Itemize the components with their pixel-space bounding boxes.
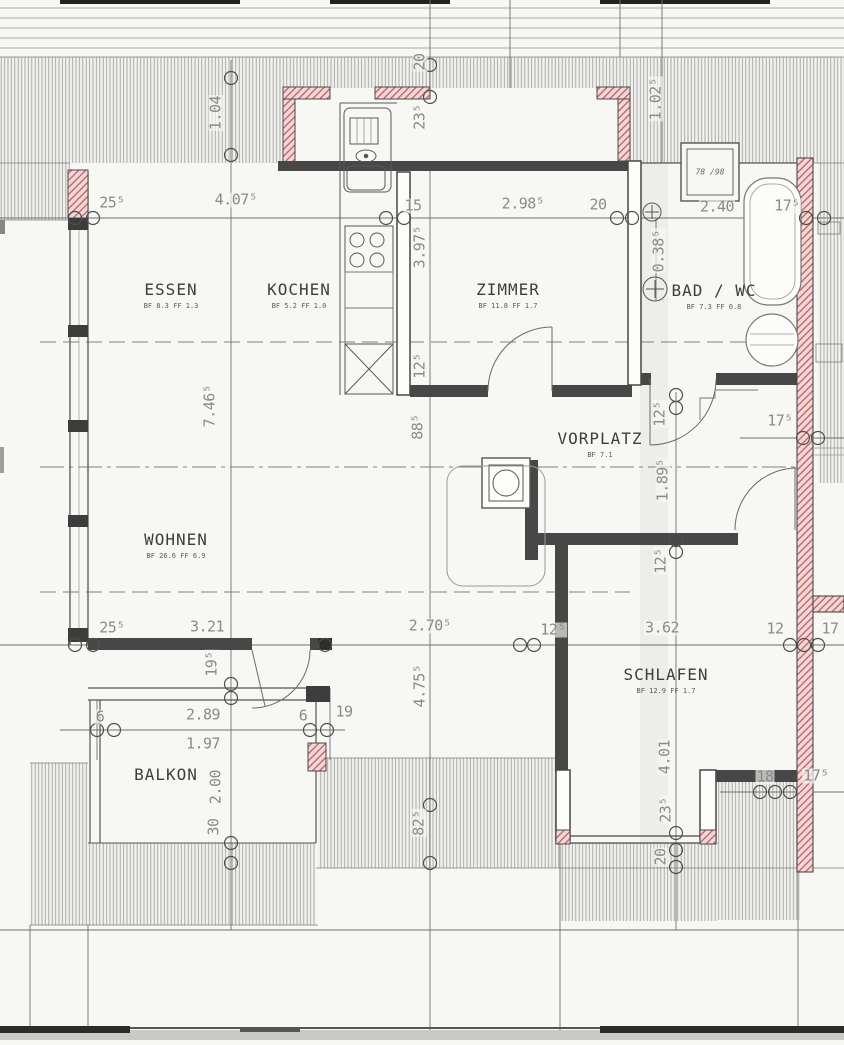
dim-label: 30 bbox=[207, 817, 222, 836]
room-info: BF 8.3 FF 1.3 bbox=[144, 302, 199, 310]
floor-plan: ESSEN BF 8.3 FF 1.3 KOCHEN BF 5.2 FF 1.0… bbox=[0, 0, 844, 1045]
washbasin bbox=[746, 314, 798, 366]
room-info: BF 7.1 bbox=[557, 451, 642, 459]
dim-label: 20 bbox=[654, 847, 669, 866]
dim-label: 12⁵ bbox=[653, 400, 668, 428]
room-label-schlafen: SCHLAFEN BF 12.9 FF 1.7 bbox=[623, 665, 708, 695]
dim-label: 17⁵ bbox=[773, 199, 801, 214]
dim-label: 6 bbox=[95, 710, 106, 725]
dim-label: 12⁵ bbox=[539, 623, 567, 638]
room-name: VORPLATZ bbox=[557, 429, 642, 448]
dim-label: 23⁵ bbox=[659, 796, 674, 824]
room-info: BF 12.9 FF 1.7 bbox=[623, 687, 708, 695]
dim-label: 2.98⁵ bbox=[501, 197, 546, 212]
dim-label: 88⁵ bbox=[411, 413, 426, 441]
dim-label: 12⁵ bbox=[413, 352, 428, 380]
dim-label: 0.38⁵ bbox=[652, 229, 667, 274]
scan-bottom-band bbox=[0, 1026, 844, 1040]
room-info: BF 5.2 FF 1.0 bbox=[267, 302, 331, 310]
room-label-wohnen: WOHNEN BF 26.6 FF 6.9 bbox=[144, 530, 208, 560]
roof-tile-band bbox=[0, 0, 844, 48]
dim-label: 18 bbox=[755, 770, 774, 785]
dim-label: 2.89 bbox=[185, 708, 221, 723]
bad-step bbox=[700, 390, 758, 420]
room-info: BF 7.3 FF 0.8 bbox=[671, 303, 756, 311]
room-name: BAD / WC bbox=[671, 281, 756, 300]
dim-label: 4.01 bbox=[658, 739, 673, 775]
roof-window-label: 78 /98 bbox=[696, 168, 725, 177]
dim-label: 25⁵ bbox=[98, 196, 126, 211]
dim-label: 6 bbox=[298, 709, 309, 724]
dim-label: 20 bbox=[413, 52, 428, 71]
dim-label: 19⁵ bbox=[205, 650, 220, 678]
dim-label: 1.04 bbox=[209, 95, 224, 131]
dim-label: 3.97⁵ bbox=[413, 225, 428, 270]
dim-label: 23⁵ bbox=[413, 103, 428, 131]
room-name: ESSEN bbox=[144, 280, 199, 299]
room-info: BF 11.8 FF 1.7 bbox=[476, 302, 540, 310]
dim-label: 1.02⁵ bbox=[649, 77, 664, 122]
room-label-balkon: BALKON bbox=[134, 765, 198, 787]
dim-label: 7.46⁵ bbox=[203, 384, 218, 429]
dim-label: 12⁵ bbox=[654, 547, 669, 575]
room-label-kochen: KOCHEN BF 5.2 FF 1.0 bbox=[267, 280, 331, 310]
dim-label: 25⁵ bbox=[98, 621, 126, 636]
room-name: ZIMMER bbox=[476, 280, 540, 299]
dim-label: 12 bbox=[765, 622, 784, 637]
dim-label: 1.97 bbox=[185, 737, 221, 752]
dim-label: 1.89⁵ bbox=[656, 458, 671, 503]
room-label-zimmer: ZIMMER BF 11.8 FF 1.7 bbox=[476, 280, 540, 310]
dim-label: 17⁵ bbox=[802, 769, 830, 784]
room-name: WOHNEN bbox=[144, 530, 208, 549]
dim-label: 17⁵ bbox=[766, 414, 794, 429]
dim-label: 19 bbox=[334, 705, 353, 720]
room-name: SCHLAFEN bbox=[623, 665, 708, 684]
dim-label: 2.70⁵ bbox=[408, 619, 453, 634]
room-info: BF 26.6 FF 6.9 bbox=[144, 552, 208, 560]
room-name: BALKON bbox=[134, 765, 198, 784]
dim-label: 82⁵ bbox=[412, 809, 427, 837]
dim-label: 4.07⁵ bbox=[214, 193, 259, 208]
dim-label: 2.40 bbox=[699, 200, 735, 215]
room-label-bad-wc: BAD / WC BF 7.3 FF 0.8 bbox=[671, 281, 756, 311]
room-label-vorplatz: VORPLATZ BF 7.1 bbox=[557, 429, 642, 459]
dim-label: 4.75⁵ bbox=[413, 664, 428, 709]
room-name: KOCHEN bbox=[267, 280, 331, 299]
dim-label: 3.21 bbox=[189, 620, 225, 635]
door-swings bbox=[252, 327, 797, 708]
dim-label: 3.62 bbox=[644, 621, 680, 636]
dim-label: 15 bbox=[403, 199, 422, 214]
dim-label: 20 bbox=[588, 198, 607, 213]
dim-label: 17 bbox=[820, 622, 839, 637]
room-label-essen: ESSEN BF 8.3 FF 1.3 bbox=[144, 280, 199, 310]
plan-linework bbox=[0, 0, 844, 1045]
dim-label: 2.00 bbox=[209, 769, 224, 805]
